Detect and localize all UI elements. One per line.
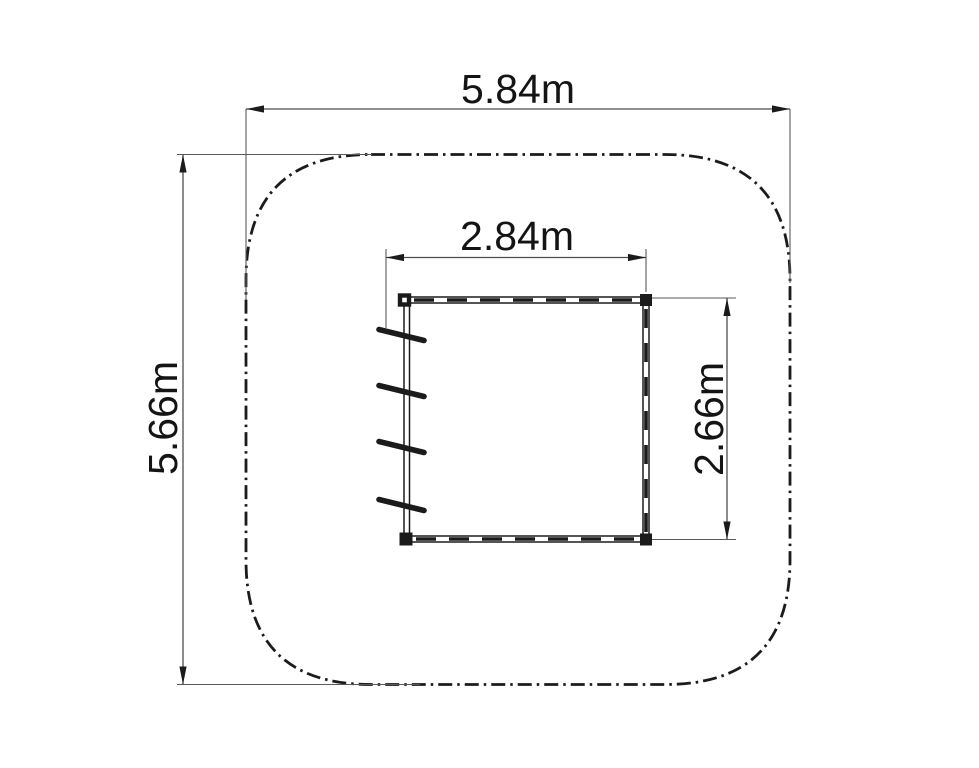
equipment-top-beam bbox=[404, 297, 646, 303]
outer-width-dimension: 5.84m bbox=[246, 66, 790, 300]
outer-width-label: 5.84m bbox=[461, 66, 575, 112]
arrowhead-bottom bbox=[723, 522, 730, 540]
inner-width-label: 2.84m bbox=[460, 213, 574, 259]
arrowhead-right bbox=[772, 105, 790, 112]
arrowhead-left bbox=[386, 254, 404, 261]
outer-height-dimension: 5.66m bbox=[140, 155, 420, 685]
inner-height-label: 2.66m bbox=[686, 362, 732, 476]
arrowhead-left bbox=[246, 105, 264, 112]
climbing-rung bbox=[379, 330, 424, 341]
climbing-rung bbox=[379, 442, 424, 453]
equipment-bottom-beam bbox=[404, 536, 646, 542]
plan-drawing-page: 5.84m 5.66m 2.84m 2.66m bbox=[0, 0, 979, 768]
corner-post-top-left bbox=[400, 296, 409, 305]
equipment-right-beam bbox=[643, 303, 649, 536]
corner-posts bbox=[400, 294, 653, 546]
arrowhead-right bbox=[628, 254, 646, 261]
inner-width-dimension: 2.84m bbox=[386, 213, 646, 328]
equipment-frame bbox=[379, 294, 652, 546]
outer-height-label: 5.66m bbox=[140, 361, 186, 475]
inner-height-dimension: 2.66m bbox=[652, 298, 736, 540]
arrowhead-top bbox=[723, 298, 730, 316]
corner-post-top-right bbox=[640, 294, 652, 306]
corner-post-bottom-right bbox=[640, 534, 652, 546]
corner-post-bottom-left bbox=[400, 533, 413, 546]
arrowhead-top bbox=[179, 155, 186, 173]
arrowhead-bottom bbox=[179, 667, 186, 685]
climbing-rung bbox=[379, 500, 424, 511]
climbing-rung bbox=[379, 386, 424, 397]
plan-drawing-canvas: 5.84m 5.66m 2.84m 2.66m bbox=[0, 0, 979, 768]
climbing-rungs bbox=[379, 330, 424, 511]
